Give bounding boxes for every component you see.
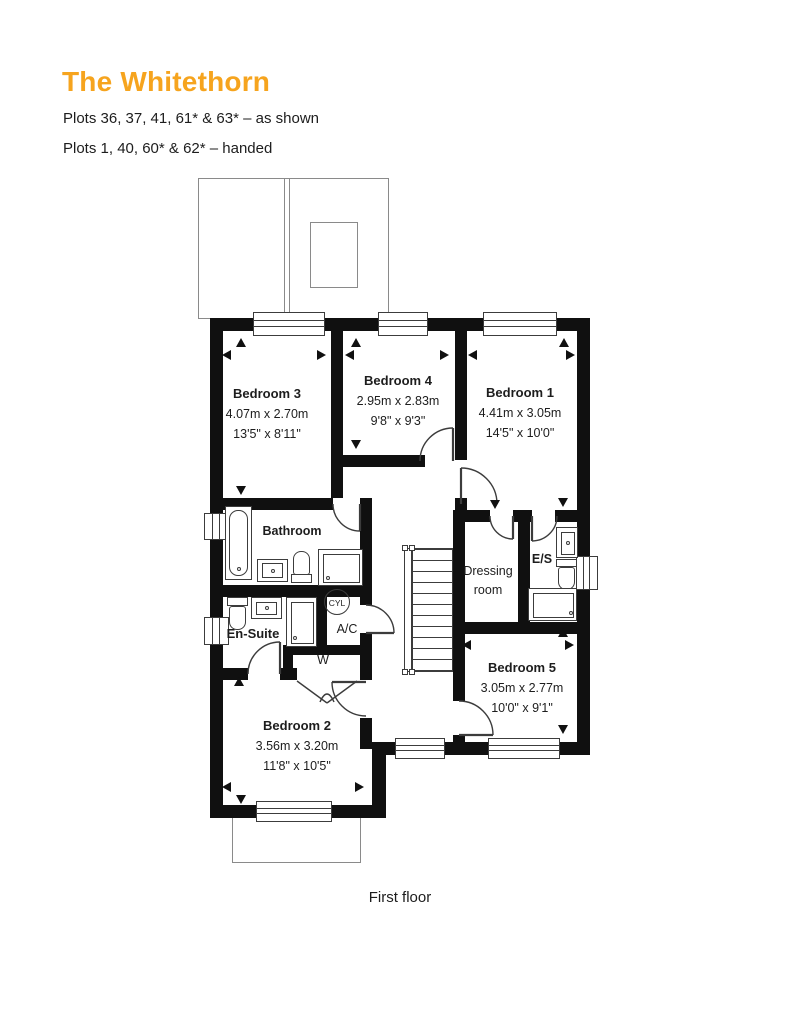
wall-segment	[453, 735, 465, 747]
dimension-arrow	[558, 498, 568, 507]
room-size-imperial: 9'8" x 9'3"	[338, 411, 458, 431]
room-label-bedroom4: Bedroom 4 2.95m x 2.83m 9'8" x 9'3"	[338, 371, 458, 431]
door-swings-layer	[0, 0, 800, 1036]
window	[378, 312, 428, 336]
room-size-metric: 2.95m x 2.83m	[338, 391, 458, 411]
floorplan-page: The Whitethorn Plots 36, 37, 41, 61* & 6…	[0, 0, 800, 1036]
ensuite-washbasin	[251, 597, 282, 619]
dimension-arrow	[234, 677, 244, 686]
bathroom-toilet	[291, 551, 312, 583]
newel-post	[402, 669, 408, 675]
wall-segment	[343, 455, 425, 467]
newel-post	[409, 669, 415, 675]
garage-door-line	[284, 179, 285, 318]
floor-plan: CYL	[0, 0, 800, 1036]
washbasin-tap	[265, 606, 269, 610]
stair-handrail	[404, 548, 412, 672]
shower-drain	[326, 576, 330, 580]
wall-segment	[280, 668, 297, 680]
floor-caption: First floor	[300, 889, 500, 906]
dimension-arrow	[558, 725, 568, 734]
dimension-arrow	[355, 782, 364, 792]
wall-segment	[555, 510, 577, 522]
window-pane	[583, 556, 589, 590]
wardrobe-label: W	[307, 653, 339, 667]
room-label-es: E/S	[518, 552, 566, 566]
wardrobe-doors	[297, 681, 357, 703]
bathtub-drain	[237, 567, 241, 571]
garage-rooflight	[310, 222, 358, 288]
dimension-arrow	[351, 440, 361, 449]
bathroom-shower	[318, 549, 363, 586]
porch-outline	[232, 818, 361, 863]
window-pane	[253, 320, 325, 327]
dimension-arrow	[345, 350, 354, 360]
room-label-bedroom3: Bedroom 3 4.07m x 2.70m 13'5" x 8'11"	[207, 384, 327, 444]
newel-post	[402, 545, 408, 551]
wall-segment	[360, 597, 372, 605]
room-label-ensuite: En-Suite	[203, 626, 303, 641]
dimension-arrow	[317, 350, 326, 360]
window	[395, 738, 445, 759]
window-pane	[378, 320, 428, 327]
door-arc-ensuite	[248, 642, 280, 674]
room-name: Bedroom 4	[338, 371, 458, 391]
toilet-cistern	[227, 597, 248, 606]
wall-segment	[513, 510, 532, 522]
window-pane	[256, 808, 332, 814]
airing-cupboard-label: A/C	[327, 622, 367, 636]
washbasin-tap	[566, 541, 570, 545]
toilet-bowl	[558, 567, 575, 590]
room-name: Bedroom 2	[227, 716, 367, 736]
dimension-arrow	[222, 350, 231, 360]
room-name: Bedroom 3	[207, 384, 327, 404]
room-size-imperial: 11'8" x 10'5"	[227, 756, 367, 776]
toilet-cistern	[291, 574, 312, 583]
dimension-arrow	[565, 640, 574, 650]
room-label-bathroom: Bathroom	[242, 524, 342, 538]
room-size-metric: 3.56m x 3.20m	[227, 736, 367, 756]
room-label-bedroom2: Bedroom 2 3.56m x 3.20m 11'8" x 10'5"	[227, 716, 367, 776]
dimension-arrow	[440, 350, 449, 360]
door-arc-dressing-room	[490, 516, 513, 539]
toilet-bowl	[293, 551, 310, 575]
door-arc-es	[532, 516, 557, 541]
dimension-arrow	[490, 500, 500, 509]
dimension-arrow	[351, 338, 361, 347]
room-size-metric: 3.05m x 2.77m	[452, 678, 592, 698]
dimension-arrow	[462, 640, 471, 650]
dimension-arrow	[566, 350, 575, 360]
room-size-imperial: 13'5" x 8'11"	[207, 424, 327, 444]
room-size-metric: 4.07m x 2.70m	[207, 404, 327, 424]
room-size-metric: 4.41m x 3.05m	[460, 403, 580, 423]
door-arc-airing-cupboard	[366, 605, 394, 633]
bathtub	[225, 506, 252, 580]
wall-segment	[453, 622, 590, 634]
dimension-arrow	[468, 350, 477, 360]
window-pane	[488, 745, 560, 751]
bathroom-washbasin	[257, 559, 288, 582]
room-size-imperial: 10'0" x 9'1"	[452, 698, 592, 718]
shower-drain	[569, 611, 573, 615]
dimension-arrow	[222, 782, 231, 792]
window	[253, 312, 325, 336]
dimension-arrow	[236, 795, 246, 804]
dimension-arrow	[559, 338, 569, 347]
window	[256, 801, 332, 822]
room-label-dressing-room: Dressing room	[448, 562, 528, 600]
room-name: Bedroom 5	[452, 658, 592, 678]
window	[576, 556, 598, 590]
dimension-arrow	[236, 486, 246, 495]
dimension-arrow	[558, 628, 568, 637]
es-shower	[528, 588, 577, 621]
cylinder-symbol: CYL	[324, 589, 350, 615]
room-label-bedroom1: Bedroom 1 4.41m x 3.05m 14'5" x 10'0"	[460, 383, 580, 443]
room-name: Bedroom 1	[460, 383, 580, 403]
window	[483, 312, 557, 336]
wall-segment	[360, 633, 372, 680]
door-arc-bedroom2	[332, 682, 366, 716]
stair-treads	[412, 548, 453, 672]
garage-outline	[198, 178, 389, 319]
shower-tray	[533, 593, 574, 618]
window-pane	[483, 320, 557, 327]
dimension-arrow	[236, 338, 246, 347]
window-pane	[395, 745, 445, 751]
garage-door-line	[289, 179, 290, 318]
room-label-bedroom5: Bedroom 5 3.05m x 2.77m 10'0" x 9'1"	[452, 658, 592, 718]
newel-post	[409, 545, 415, 551]
washbasin-tap	[271, 569, 275, 573]
window-pane	[212, 513, 219, 540]
wall-segment	[455, 498, 467, 510]
window	[488, 738, 560, 759]
room-size-imperial: 14'5" x 10'0"	[460, 423, 580, 443]
